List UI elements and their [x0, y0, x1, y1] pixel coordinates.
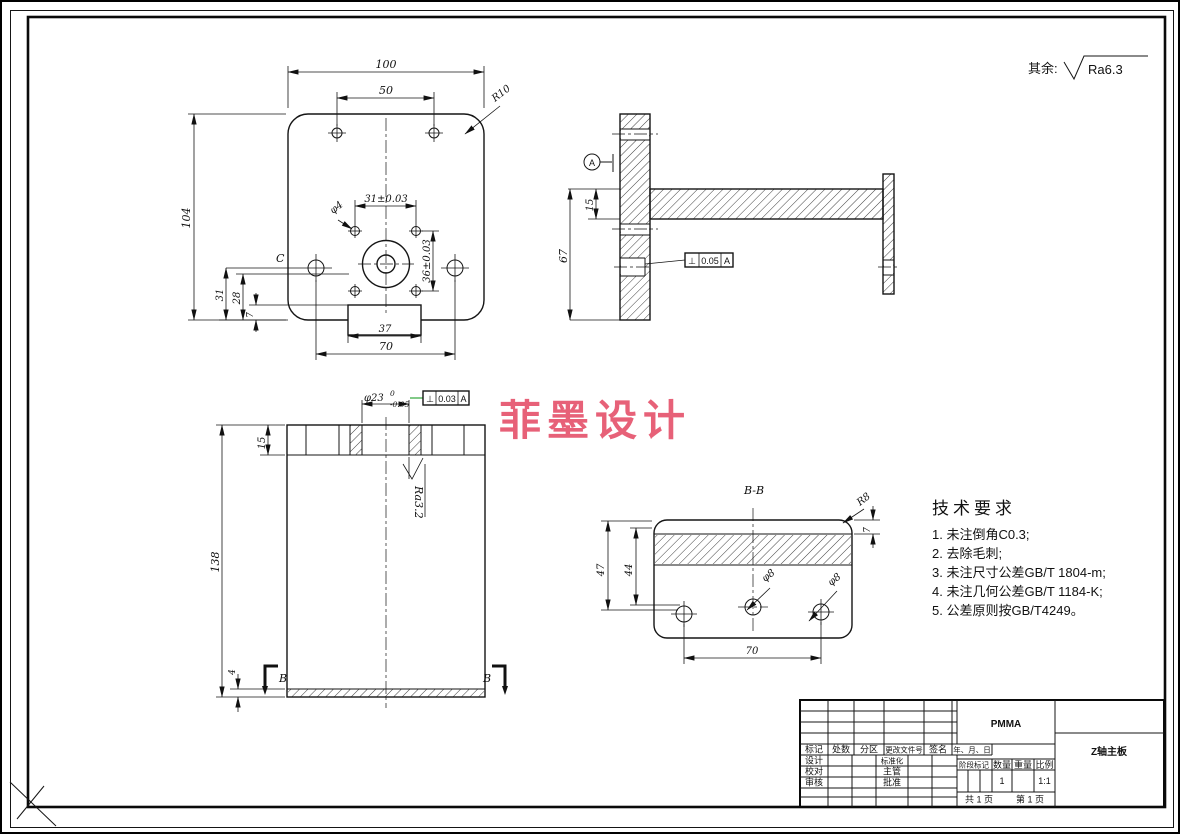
title-block: 标记 处数 分区 更改文件号 签名 年、月、日 设计 校对 审核 标准化 主管 …	[800, 700, 1164, 807]
dim-base-4: 4	[228, 669, 238, 676]
roughness-prefix-label: 其余:	[1028, 61, 1058, 76]
dim-height-138: 138	[209, 552, 222, 573]
tech-req-title: 技术要求	[932, 499, 1016, 518]
signature-rows: 设计 校对 审核 标准化 主管 批准	[800, 755, 957, 808]
dim-bore: φ23	[364, 393, 384, 404]
qty-label: 数量	[993, 759, 1011, 770]
side-view-fcf: ⊥ 0.05 A	[645, 253, 733, 267]
dim-overall-height: 104	[180, 208, 193, 229]
weight-label: 重量	[1014, 759, 1032, 770]
bottom-view: φ23 0 -0.05 ⊥ 0.03 A Ra3.2 15 138	[209, 389, 508, 712]
material-value: PMMA	[991, 719, 1022, 730]
dim-pattern-height: 36±0.03	[422, 239, 433, 282]
roughness-callout: Ra3.2	[403, 458, 425, 519]
side-view: A 15 67 ⊥ 0.05 A	[557, 114, 899, 320]
role-label: 设计	[805, 755, 823, 766]
role-label: 审核	[805, 777, 823, 788]
side-view-dimensions: 15 67	[557, 189, 620, 320]
bottom-view-dimensions: 15 138 4	[209, 425, 285, 712]
dim-hole-right: φ8	[826, 571, 843, 588]
dim-7-band: 7	[863, 527, 873, 533]
dim-47: 47	[596, 563, 607, 577]
dim-tab-width: 37	[379, 324, 392, 335]
dim-7: 7	[246, 312, 256, 318]
front-view-dimensions: 100 50 R10 104 31±0.03 φ4 36±0.03 C 31	[180, 58, 513, 360]
tech-req-item: 3. 未注尺寸公差GB/T 1804-m;	[932, 565, 1106, 580]
tech-req-item: 5. 公差原则按GB/T4249。	[932, 603, 1084, 618]
fcf-datum: A	[724, 256, 730, 266]
label-c: C	[276, 252, 285, 265]
dim-28: 28	[232, 292, 243, 306]
fcf-tolerance: 0.05	[701, 256, 719, 266]
scale-label: 比例	[1035, 759, 1053, 770]
qty-value: 1	[999, 776, 1004, 786]
drawing-sheet: 其余: Ra6.3	[0, 0, 1180, 834]
section-title: B-B	[743, 484, 764, 497]
dim-corner-radius: R10	[489, 83, 513, 105]
dim-hole-spacing-70: 70	[746, 646, 759, 657]
fcf2-tolerance: 0.03	[438, 394, 456, 404]
part-name-zone: Z轴主板	[1055, 700, 1164, 807]
datum-a-symbol: A	[584, 154, 613, 172]
section-holes	[671, 599, 834, 627]
dim-overall-width: 100	[376, 58, 397, 71]
role-label: 批准	[883, 777, 901, 788]
pages-current: 第 1 页	[1016, 794, 1044, 805]
dim-44: 44	[624, 564, 635, 578]
revision-header: 年、月、日	[953, 745, 991, 755]
watermark-text: 菲墨设计	[499, 397, 691, 444]
fcf2-datum: A	[460, 394, 466, 404]
fcf2-symbol: ⊥	[426, 394, 434, 404]
top-holes	[328, 124, 443, 142]
bore-lower-tol: -0.05	[390, 400, 409, 409]
revision-header: 分区	[860, 745, 878, 755]
revision-header: 处数	[832, 744, 850, 755]
part-name: Z轴主板	[1091, 745, 1128, 758]
section-bb-view: B-B 47 44 R8 7 φ8	[596, 484, 880, 664]
bottom-view-fcf: ⊥ 0.03 A	[410, 391, 469, 405]
dim-small-hole: φ4	[328, 199, 345, 216]
dim-flange-15: 15	[257, 437, 268, 450]
dim-hole-mid: φ8	[760, 567, 777, 584]
flange-details	[306, 425, 464, 455]
tech-req-item: 1. 未注倒角C0.3;	[932, 527, 1030, 542]
tech-req-item: 2. 去除毛刺;	[932, 546, 1002, 561]
cad-drawing: 其余: Ra6.3	[2, 2, 1180, 834]
dim-radius-r8: R8	[854, 491, 873, 509]
trim-mark-x	[10, 782, 56, 826]
dim-arm-thickness: 15	[585, 199, 596, 212]
stage-label: 阶段标记	[959, 760, 989, 770]
revision-header: 更改文件号	[885, 745, 923, 755]
dim-height-67: 67	[557, 249, 570, 263]
roughness-value: Ra6.3	[1088, 62, 1123, 77]
fcf-symbol: ⊥	[688, 256, 696, 266]
dim-top-hole-spacing: 50	[379, 84, 393, 97]
revision-header: 标记	[805, 744, 823, 755]
role-label: 校对	[805, 766, 823, 777]
pages-total: 共 1 页	[965, 795, 993, 805]
front-view: 100 50 R10 104 31±0.03 φ4 36±0.03 C 31	[180, 58, 513, 360]
role-label: 标准化	[881, 756, 904, 766]
general-roughness-note: 其余: Ra6.3	[1028, 56, 1148, 79]
scale-value: 1:1	[1038, 776, 1051, 786]
dim-31: 31	[215, 289, 226, 302]
tech-requirements: 技术要求 1. 未注倒角C0.3; 2. 去除毛刺; 3. 未注尺寸公差GB/T…	[932, 499, 1106, 618]
datum-a-label: A	[589, 158, 595, 168]
roughness-ra32: Ra3.2	[412, 485, 425, 519]
role-label: 主管	[883, 766, 901, 777]
tech-req-item: 4. 未注几何公差GB/T 1184-K;	[932, 584, 1103, 599]
dim-pattern-width: 31±0.03	[364, 194, 407, 205]
section-letter-left: B	[278, 672, 287, 685]
dim-side-hole-spacing: 70	[379, 340, 393, 353]
section-letter-right: B	[482, 672, 491, 685]
revision-header: 签名	[929, 744, 947, 755]
bore-upper-tol: 0	[390, 389, 395, 398]
